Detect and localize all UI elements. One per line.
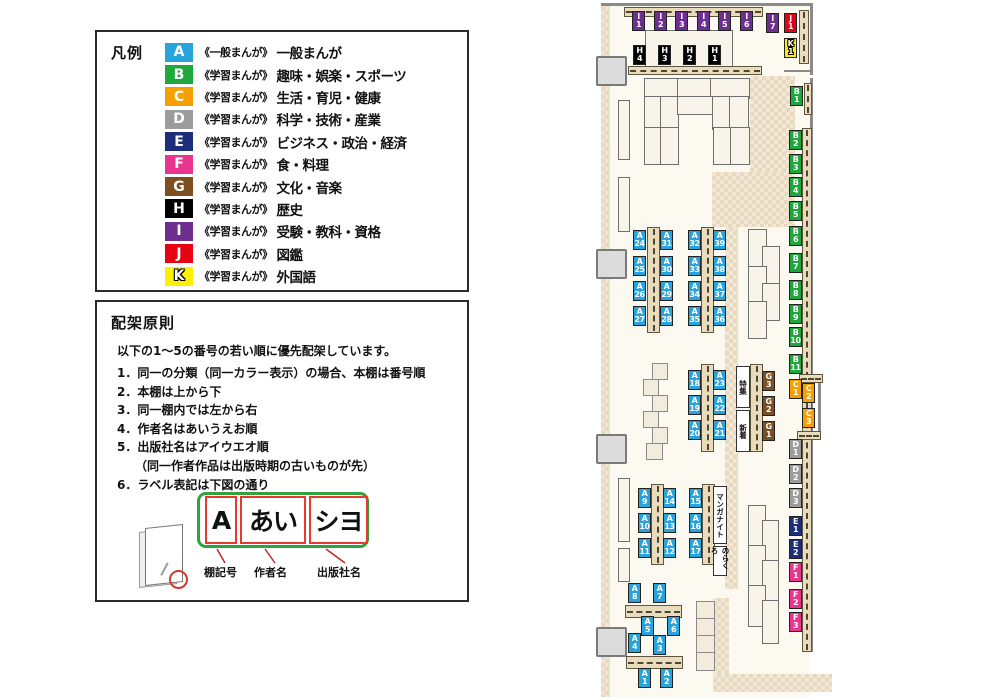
table (652, 363, 668, 380)
wall-shelf (618, 177, 630, 232)
shelf-strip (702, 484, 715, 565)
shelf-strip (797, 431, 821, 440)
left-wall-walkway (601, 3, 610, 697)
shelf-strip (651, 484, 664, 565)
table (762, 600, 779, 644)
shelf-strip (802, 128, 812, 652)
top-wall (601, 3, 812, 6)
shelf-strip (624, 7, 763, 17)
shelf-strip (626, 656, 683, 669)
table (652, 427, 668, 444)
wall-shelf (618, 478, 630, 542)
shelf-strip (750, 364, 763, 452)
shelf-strip (701, 227, 714, 333)
shelf-block (730, 127, 750, 165)
wall-step (784, 70, 812, 72)
right-wall-upper (810, 3, 813, 75)
shelf-strip (625, 605, 682, 618)
shelf-strip (799, 374, 823, 383)
table (643, 411, 659, 428)
shelf-block (729, 96, 749, 130)
walkway (712, 172, 795, 227)
shelf-strip (628, 66, 762, 75)
shelf-strip (799, 10, 809, 64)
table (646, 443, 663, 460)
walkway (713, 598, 729, 678)
shelf-block (660, 127, 679, 165)
shelf-block (645, 30, 733, 70)
walkway (713, 674, 832, 692)
door (596, 56, 627, 86)
door (596, 434, 627, 464)
wall-shelf (618, 100, 630, 160)
shelf-block (677, 96, 713, 115)
wall-jut (818, 374, 821, 436)
shelf-strip (804, 83, 812, 115)
wall-shelf (618, 548, 630, 582)
floor-map: I 1 I 2 I 3 I 4 I 5 I 6 I 7 J 1 K 1 H 4 … (0, 0, 1000, 700)
shelf-strip (647, 227, 660, 333)
door (596, 627, 627, 657)
map-labels: I 1 I 2 I 3 I 4 I 5 I 6 I 7 J 1 K 1 H 4 … (0, 0, 1000, 700)
table (652, 395, 668, 412)
walkway (725, 227, 738, 589)
door (596, 249, 627, 279)
seat (696, 652, 715, 671)
table (748, 301, 767, 339)
shelf-strip (701, 364, 714, 452)
walkway (750, 76, 795, 172)
table (643, 379, 659, 396)
